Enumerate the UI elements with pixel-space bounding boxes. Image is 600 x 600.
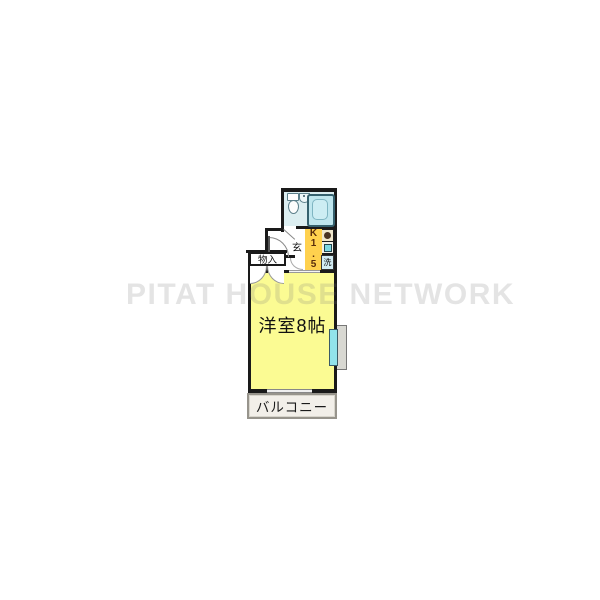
hall-door-arc-icon bbox=[290, 258, 303, 270]
closet-label: 物入 bbox=[249, 252, 286, 266]
kitchen-size-label: K 1 . 5 bbox=[306, 229, 321, 270]
washer-space-label: 洗 bbox=[321, 255, 334, 270]
entrance-label: 玄 bbox=[292, 239, 302, 254]
balcony-area: バルコニー bbox=[247, 393, 337, 419]
balcony-label: バルコニー bbox=[256, 396, 328, 416]
kitchen-char: 1 bbox=[311, 239, 317, 249]
bathtub-icon bbox=[307, 194, 335, 227]
kitchen-sink-icon bbox=[322, 242, 333, 253]
wall bbox=[281, 188, 284, 232]
stove-burner-icon bbox=[322, 230, 333, 241]
main-room-label: 洋室8帖 bbox=[251, 312, 334, 338]
room-entry-sliding-door-icon bbox=[289, 270, 320, 273]
wall bbox=[281, 188, 337, 192]
kitchen-char: 5 bbox=[311, 260, 317, 270]
balcony-sliding-window-icon bbox=[267, 389, 312, 393]
floorplan-canvas: PITAT HOUSE NETWORK 玄 K 1 . 5 洗 物入 洋室8帖 bbox=[0, 0, 600, 600]
washer-label-text: 洗 bbox=[324, 257, 332, 268]
closet-label-text: 物入 bbox=[258, 252, 277, 266]
